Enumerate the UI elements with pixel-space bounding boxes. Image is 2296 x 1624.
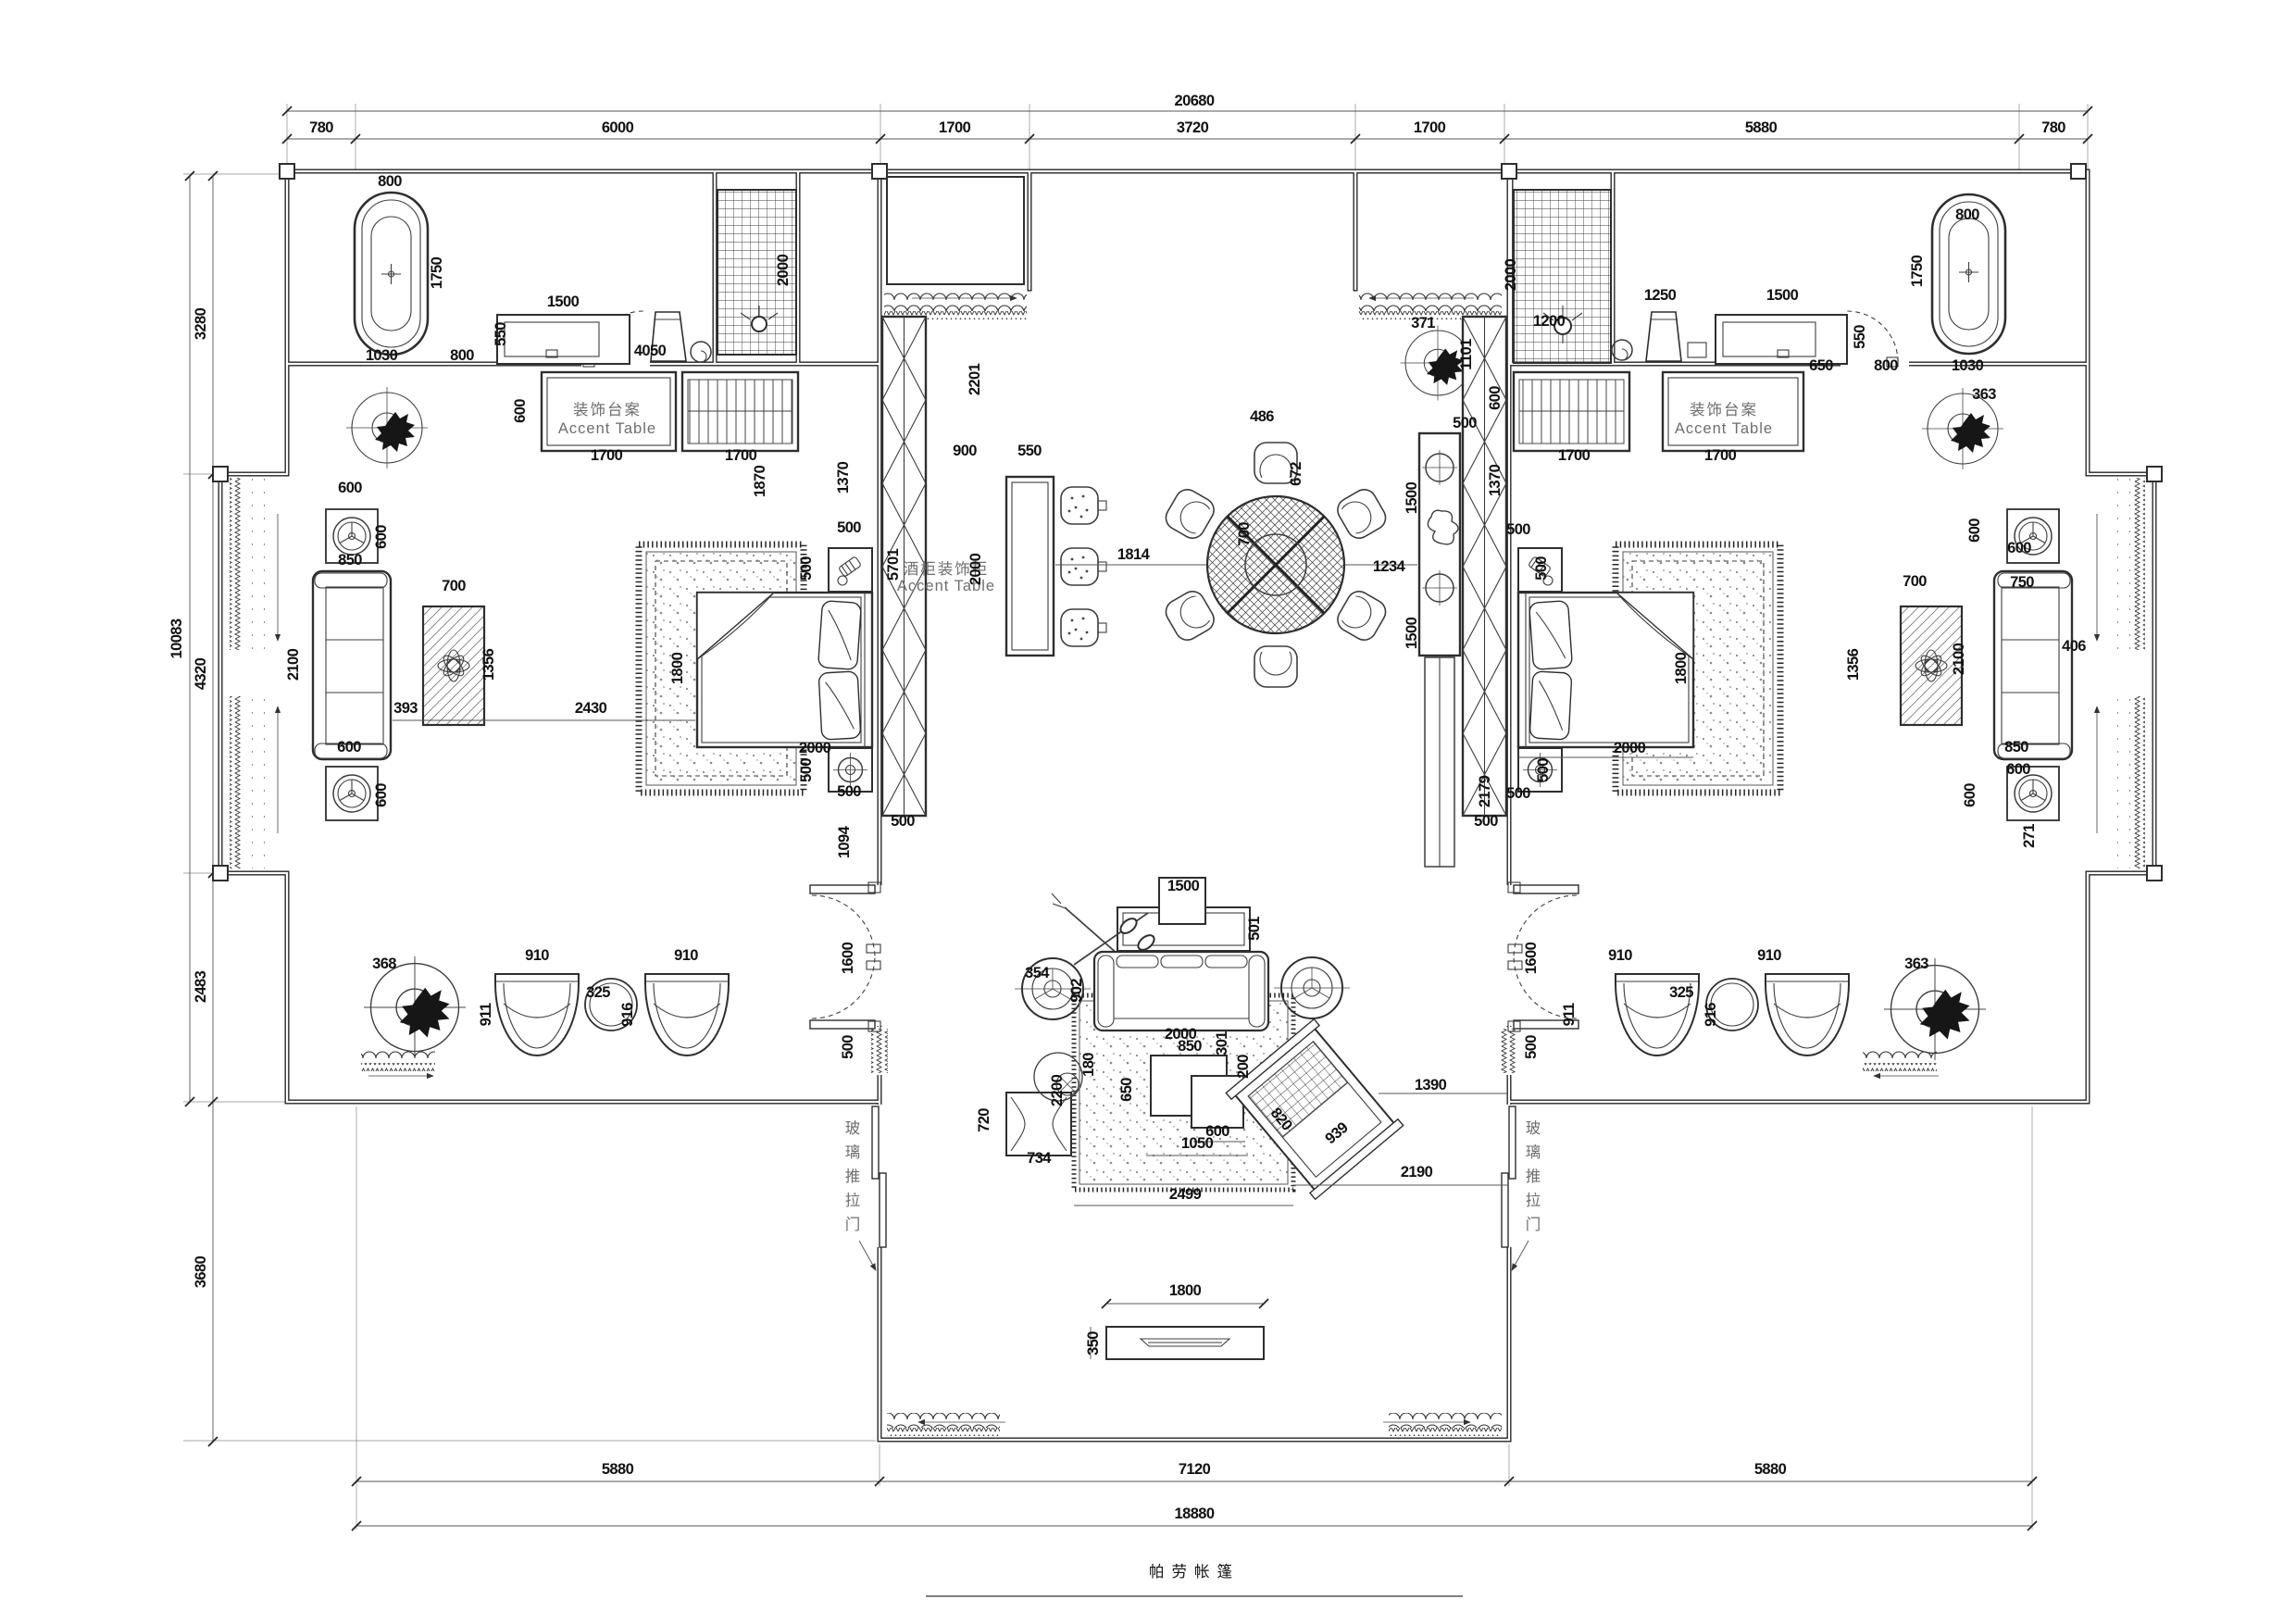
dim-label: 850	[2004, 739, 2028, 756]
dim-label: 600	[1962, 783, 1978, 807]
room-label: 门	[845, 1216, 863, 1233]
coffee-table-left-wing	[423, 606, 484, 725]
dim-label: 2000	[799, 740, 831, 756]
dim-label: 3720	[1177, 119, 1209, 136]
sofa-left-wing	[313, 571, 391, 759]
dim-label: 910	[674, 947, 698, 964]
dim-label: 1700	[1414, 119, 1446, 136]
dim-label: 2179	[1477, 775, 1493, 807]
bar-counter	[1006, 477, 1054, 656]
room-label: 门	[1526, 1216, 1543, 1233]
dim-label: 500	[840, 1035, 856, 1059]
dim-label: 734	[1027, 1150, 1052, 1167]
dim-label: 700	[1903, 573, 1927, 590]
column-markers	[213, 164, 2162, 881]
dim-label: 486	[1250, 408, 1274, 425]
dim-label: 916	[619, 1003, 636, 1027]
dim-label: 600	[373, 783, 390, 807]
dim-label: 500	[1506, 521, 1530, 538]
room-label: 玻	[845, 1119, 863, 1137]
dim-label: 500	[798, 758, 815, 782]
dim-label: 600	[2006, 761, 2030, 778]
vanity-left	[497, 312, 711, 364]
dim-label: 1500	[1167, 878, 1200, 894]
dim-label: 600	[1487, 386, 1504, 410]
dim-label: 500	[1535, 758, 1552, 782]
bed-right	[1518, 593, 1693, 747]
dim-label: 911	[1561, 1003, 1578, 1026]
dim-label: 1700	[939, 119, 971, 136]
dim-label: 2100	[1951, 643, 1967, 675]
dim-label: 2430	[575, 700, 607, 717]
dim-label: 672	[1288, 462, 1304, 486]
dim-label: 902	[1068, 979, 1085, 1003]
dim-label: 700	[442, 578, 466, 594]
dim-label: 350	[1085, 1331, 1102, 1355]
dim-label: 910	[1608, 947, 1632, 964]
dim-label: 1356	[1845, 648, 1862, 681]
dim-label: 1800	[1169, 1282, 1202, 1299]
dim-label: 750	[2010, 574, 2034, 591]
sofa-right-wing	[1994, 571, 2072, 759]
dim-label: 371	[1411, 315, 1435, 331]
dim-label: 5880	[1754, 1461, 1787, 1478]
dim-label: 363	[1904, 956, 1928, 972]
dim-label: 4050	[634, 343, 667, 359]
dim-label: 650	[1118, 1078, 1135, 1102]
dim-label: 1600	[1523, 942, 1540, 974]
dim-label: 1500	[1766, 287, 1799, 304]
dim-label: 500	[1533, 556, 1550, 581]
low-shelf	[1106, 1327, 1264, 1359]
dim-label: 500	[1523, 1035, 1540, 1059]
dim-label: 1050	[1181, 1135, 1214, 1152]
dim-label: 2201	[967, 363, 983, 395]
dim-label: 800	[378, 173, 402, 190]
dim-label: 500	[1453, 415, 1477, 431]
dim-label: 600	[1966, 518, 1983, 543]
dim-label: 325	[1669, 984, 1693, 1001]
bottom-right-wing	[1616, 958, 1986, 1060]
dim-label: 1234	[1373, 558, 1406, 575]
dim-label: 325	[586, 984, 610, 1001]
dim-label: 1101	[1458, 339, 1475, 370]
dim-label: 2190	[1401, 1164, 1433, 1181]
dim-label: 200	[1235, 1055, 1252, 1079]
dim-label: 600	[512, 399, 529, 423]
dim-label: 363	[1972, 386, 1996, 403]
bottom-left-wing	[364, 956, 729, 1058]
dim-label: 1390	[1415, 1077, 1447, 1093]
room-label: 玻	[1526, 1119, 1543, 1137]
dim-label: 6000	[602, 119, 634, 136]
dim-label: 5880	[1745, 119, 1778, 136]
dim-label: 1500	[547, 294, 580, 310]
dim-label: 600	[337, 739, 361, 756]
floor-plan-sheet: 帕劳帐篷 20680780600017003720170058807801008…	[0, 0, 2296, 1624]
dim-label: 1500	[1404, 481, 1420, 514]
dim-label: 406	[2062, 638, 2086, 655]
dim-label: 911	[478, 1003, 494, 1026]
dim-label: 2200	[1049, 1074, 1066, 1106]
dim-label: 3680	[193, 1255, 209, 1288]
dim-label: 780	[309, 119, 333, 136]
dim-label: 800	[1955, 206, 1979, 223]
dim-label: 500	[837, 783, 861, 800]
dim-label: 2000	[967, 553, 984, 585]
dim-label: 850	[1178, 1038, 1202, 1055]
dim-label: 1370	[1487, 464, 1504, 496]
floor-plan-drawing: 帕劳帐篷 20680780600017003720170058807801008…	[0, 0, 2296, 1624]
drawer-cabinet-right	[1514, 372, 1629, 451]
dim-label: 354	[1025, 965, 1050, 981]
dim-label: 2000	[1614, 740, 1646, 756]
dim-label: 20680	[1175, 93, 1215, 109]
dim-label: 18880	[1175, 1505, 1215, 1522]
dim-label: 1700	[1558, 447, 1591, 464]
nightstand-left-top	[829, 548, 872, 592]
vanity-right	[1612, 312, 1847, 364]
dim-label: 10083	[168, 618, 185, 658]
dim-label: 1250	[1644, 287, 1677, 304]
dim-label: 301	[1214, 1031, 1230, 1056]
dim-label: 500	[837, 519, 861, 536]
dim-label: 5701	[885, 548, 902, 581]
room-label: Accent Table	[558, 420, 656, 437]
dim-label: 900	[953, 443, 977, 459]
dim-label: 780	[2041, 119, 2065, 136]
dim-label: 1750	[429, 256, 445, 289]
dim-label: 1356	[480, 648, 497, 681]
dim-label: 1600	[840, 942, 856, 974]
dim-label: 550	[493, 322, 509, 346]
drawer-cabinet-left	[682, 372, 798, 451]
dim-label: 1870	[752, 465, 768, 497]
kitchen-counter-right	[1419, 433, 1460, 867]
dim-label: 720	[976, 1108, 992, 1132]
dim-label: 1700	[1704, 447, 1737, 464]
room-label: 装饰台案	[573, 401, 642, 418]
dim-label: 910	[525, 947, 549, 964]
center-dining	[1006, 433, 1460, 867]
dim-label: 7120	[1179, 1461, 1211, 1478]
dim-label: 501	[1246, 917, 1263, 941]
room-label: 拉	[1526, 1192, 1543, 1209]
dim-label: 2100	[285, 648, 302, 681]
dim-label: 700	[1236, 522, 1253, 546]
room-label: 璃	[845, 1143, 863, 1161]
dim-label: 2499	[1169, 1186, 1202, 1203]
dim-label: 368	[372, 956, 396, 972]
dim-label: 1094	[836, 825, 853, 858]
dim-label: 2000	[1503, 258, 1519, 291]
bathtub-left	[355, 193, 428, 355]
dim-label: 600	[338, 480, 362, 496]
dim-label: 550	[1852, 325, 1868, 349]
dim-label: 600	[373, 525, 390, 549]
bed-left	[697, 593, 872, 747]
dim-label: 5880	[602, 1461, 634, 1478]
windows	[230, 289, 2145, 1436]
dim-label: 800	[1874, 357, 1898, 374]
room-label: 装饰台案	[1690, 401, 1758, 418]
dim-label: 500	[1474, 813, 1498, 830]
dim-label: 1750	[1909, 255, 1926, 287]
dim-label: 1030	[1952, 357, 1984, 374]
room-label: 拉	[845, 1192, 863, 1209]
room-label: 璃	[1526, 1143, 1543, 1161]
dim-label: 500	[798, 556, 815, 581]
terrace	[1091, 1299, 1268, 1359]
dim-label: 1370	[835, 461, 852, 493]
dimension-chain-top	[282, 104, 2092, 169]
dim-label: 550	[1017, 443, 1042, 459]
dim-label: 271	[2021, 824, 2038, 848]
dim-label: 1814	[1117, 546, 1151, 563]
dim-label: 916	[1703, 1003, 1719, 1027]
room-label: Accent Table	[1675, 420, 1773, 437]
dim-label: 1200	[1533, 313, 1566, 330]
dim-label: 1800	[669, 652, 686, 684]
right-wing-lounge	[1901, 509, 2072, 820]
shower-right	[1514, 190, 1611, 363]
dim-label: 3280	[193, 307, 209, 340]
drawing-title: 帕劳帐篷	[1149, 1563, 1240, 1580]
dim-label: 500	[1506, 785, 1530, 802]
dim-label: 1500	[1404, 617, 1420, 649]
dim-label: 1700	[725, 447, 757, 464]
dim-label: 600	[2007, 540, 2031, 556]
porch-niche-left	[887, 177, 1024, 284]
dim-label: 650	[1809, 357, 1833, 374]
dim-label: 800	[450, 347, 474, 364]
dim-label: 180	[1080, 1053, 1097, 1077]
dim-label: 393	[393, 700, 418, 717]
room-label: 推	[1526, 1168, 1543, 1185]
dim-label: 1030	[366, 347, 398, 364]
dim-label: 910	[1757, 947, 1781, 964]
dim-label: 1800	[1673, 652, 1690, 684]
dining-table	[1207, 496, 1344, 633]
dim-label: 4320	[193, 657, 209, 690]
dim-label: 850	[338, 552, 362, 568]
room-label: 推	[845, 1168, 863, 1185]
sofa-living	[1094, 952, 1268, 1031]
dim-label: 500	[891, 813, 915, 830]
dim-label: 1700	[591, 447, 623, 464]
dim-label: 2000	[775, 254, 792, 286]
dim-label: 2483	[193, 970, 209, 1003]
